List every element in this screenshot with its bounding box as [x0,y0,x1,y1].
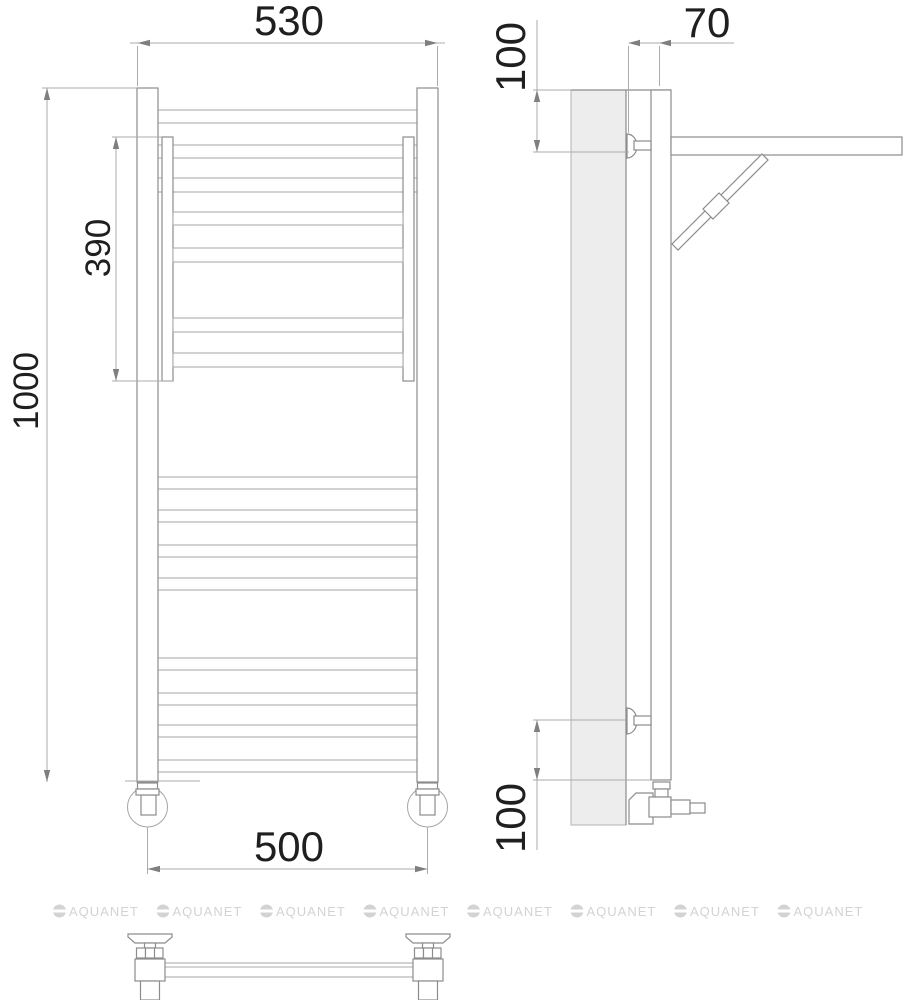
top-view-left-fitting [128,934,172,1000]
right-foot [408,783,448,827]
technical-drawing-page: 530 1000 390 500 [0,0,904,1000]
dim-390: 390 [79,137,173,381]
left-foot [128,783,168,827]
upper-bracket [627,134,651,158]
front-view: 530 1000 390 500 [7,0,448,874]
dim-100-top-label: 100 [487,22,534,92]
watermark: AQUANET [156,904,243,919]
dim-500: 500 [148,823,428,874]
watermark-text: AQUANET [276,904,346,919]
watermark-text: AQUANET [380,904,450,919]
dim-70-label: 70 [684,0,731,46]
right-tube [417,88,438,782]
watermark: AQUANET [673,904,760,919]
watermark-text: AQUANET [587,904,657,919]
side-view: 70 100 100 [487,0,902,853]
lower-bracket [627,708,651,734]
top-view-right-fitting [406,934,450,1000]
bottom-valve [629,782,705,824]
watermark: AQUANET [777,904,864,919]
dim-530-label: 530 [254,0,324,44]
dim-70: 70 [629,0,735,133]
top-view-rail [165,963,413,977]
rungs-shelf-fullwidth [158,145,417,192]
watermark-text: AQUANET [690,904,760,919]
watermark-row: AQUANET AQUANET AQUANET AQUANET AQUANET … [52,904,863,919]
wall-tube [651,90,671,780]
rungs-bottom [158,658,417,772]
watermark-text: AQUANET [483,904,553,919]
left-tube [137,88,158,782]
top-crossbar [158,110,417,123]
shelf-bar [671,137,902,155]
rungs-shelf [173,212,403,367]
top-view [128,934,450,1000]
watermark-text: AQUANET [173,904,243,919]
watermark: AQUANET [466,904,553,919]
dim-100-bottom: 100 [487,720,653,853]
watermark: AQUANET [570,904,657,919]
dim-1000-label: 1000 [7,352,46,430]
dim-500-label: 500 [254,823,324,870]
dim-390-label: 390 [79,219,118,277]
rungs-middle [158,477,417,590]
towel-rail-drawing: 530 1000 390 500 [0,0,904,1000]
watermark: AQUANET [259,904,346,919]
watermark: AQUANET [52,904,139,919]
dim-100-bottom-label: 100 [487,783,534,853]
watermark-text: AQUANET [69,904,139,919]
dim-530: 530 [130,0,445,86]
diagonal-brace [672,154,768,250]
watermark: AQUANET [363,904,450,919]
watermark-text: AQUANET [794,904,864,919]
